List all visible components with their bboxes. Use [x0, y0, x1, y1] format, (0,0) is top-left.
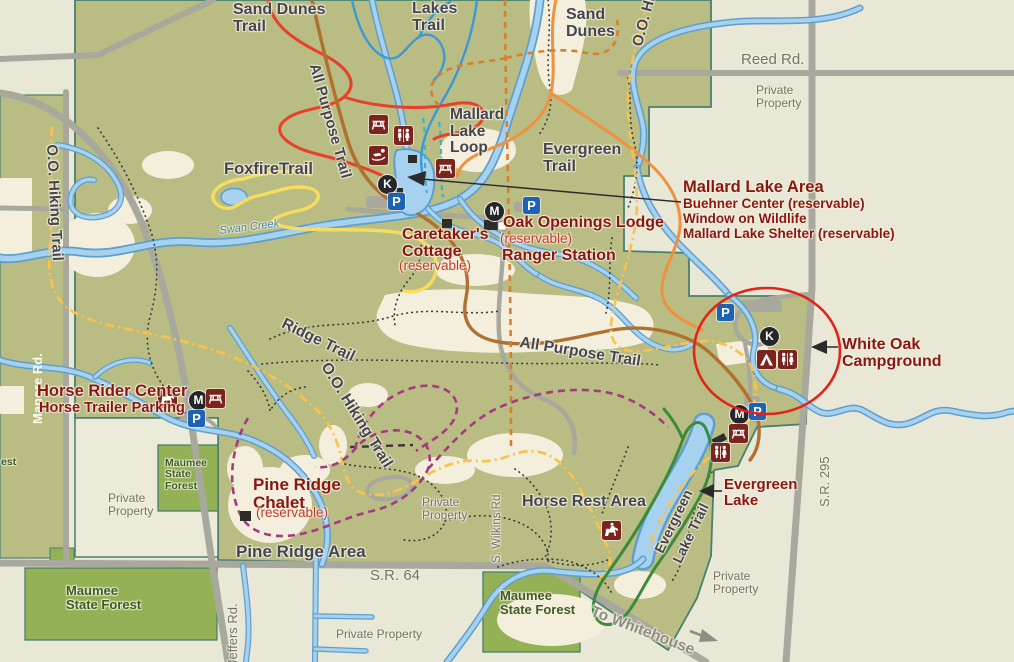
oak-openings-lodge-label: Oak Openings Lodge	[503, 214, 664, 231]
caretakers-cottage-label: Caretaker's Cottage	[402, 226, 489, 261]
restroom-icon	[394, 126, 413, 145]
mallard-lake-loop-label: Mallard Lake Loop	[450, 107, 504, 157]
white-oak-campground-label: White Oak Campground	[842, 336, 1014, 371]
sr-64-label: S.R. 64	[370, 568, 420, 584]
mallard-lake-area-title: Mallard Lake Area	[683, 179, 824, 197]
parking-letter: P	[721, 305, 730, 320]
sand-dunes-label: Sand Dunes	[566, 6, 615, 41]
mallard-lake-shelter-label: Mallard Lake Shelter (reservable)	[683, 227, 895, 242]
sr-295-label: S.R. 295	[818, 456, 832, 507]
forest-label-fragment: est	[1, 457, 16, 468]
k-marker: K	[377, 174, 398, 195]
horse-rest-icon	[602, 521, 621, 540]
private-property-label: Private Property	[756, 84, 801, 110]
s-wilkins-rd-label: S. Wilkins Rd.	[491, 491, 503, 563]
k-marker-letter: K	[383, 177, 392, 191]
map-base-graphics	[0, 0, 1014, 662]
private-property-label: Private Property	[422, 496, 467, 522]
campground-tent-icon	[757, 350, 776, 369]
parking-letter: P	[527, 198, 536, 213]
parking-icon: P	[388, 193, 405, 210]
sand-dunes-trail-label: Sand Dunes Trail	[233, 1, 325, 36]
parking-letter: P	[192, 411, 201, 426]
picnic-icon	[369, 115, 388, 134]
horse-rest-area-label: Horse Rest Area	[522, 493, 646, 510]
parking-icon: P	[749, 403, 766, 420]
private-property-label: Private Property	[108, 492, 153, 518]
sledding-icon	[369, 146, 388, 165]
private-property-label: Private Property	[713, 570, 758, 596]
buehner-center-label: Buehner Center (reservable)	[683, 197, 865, 212]
restroom-icon	[778, 350, 797, 369]
reed-rd-label: Reed Rd.	[741, 52, 804, 68]
evergreen-lake-label: Evergreen Lake	[724, 477, 797, 509]
lakes-trail-label: Lakes Trail	[412, 0, 457, 35]
maumee-state-forest-small-label: Maumee State Forest	[165, 458, 207, 492]
private-property-label: Private Property	[336, 628, 422, 641]
k-marker-letter: K	[765, 329, 774, 343]
window-on-wildlife-label: Window on Wildlife	[683, 212, 806, 227]
maumee-forest-parcel-tiny	[50, 548, 74, 561]
picnic-icon	[206, 389, 225, 408]
parking-icon: P	[717, 304, 734, 321]
m-marker: M	[729, 404, 750, 425]
evergreen-trail-label: Evergreen Trail	[543, 141, 621, 176]
oak-openings-lodge-note: (reservable)	[500, 232, 572, 247]
horse-rider-center-label: Horse Rider Center	[37, 383, 187, 401]
caretakers-cottage-note: (reservable)	[399, 259, 471, 274]
jeffers-rd-label: Jeffers Rd.	[226, 603, 240, 662]
parking-icon: P	[188, 410, 205, 427]
horse-trailer-parking-label: Horse Trailer Parking	[39, 401, 185, 417]
parking-letter: P	[753, 404, 762, 419]
picnic-icon	[436, 159, 455, 178]
restroom-icon	[711, 443, 730, 462]
k-marker: K	[759, 326, 780, 347]
park-map: K P M P P K M P M P Sand Dunes Trail Lak…	[0, 0, 1014, 662]
picnic-icon	[729, 424, 748, 443]
parking-letter: P	[392, 194, 401, 209]
maumee-state-forest-label: Maumee State Forest	[66, 584, 141, 612]
foxfire-trail-label: FoxfireTrail	[224, 161, 313, 179]
m-marker: M	[484, 201, 505, 222]
ranger-station-label: Ranger Station	[502, 247, 616, 264]
m-marker-letter: M	[194, 393, 204, 407]
parking-icon: P	[523, 197, 540, 214]
m-marker-letter: M	[490, 204, 500, 218]
maumee-state-forest-label: Maumee State Forest	[500, 589, 575, 617]
pine-ridge-chalet-note: (reservable)	[256, 506, 328, 521]
pine-ridge-area-label: Pine Ridge Area	[236, 543, 366, 561]
m-marker-letter: M	[735, 407, 745, 421]
